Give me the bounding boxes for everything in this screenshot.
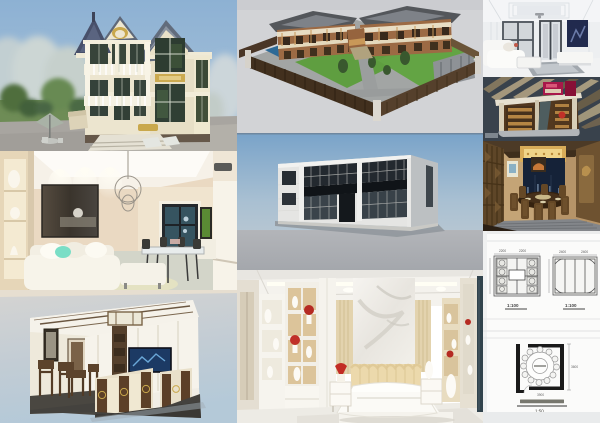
svg-text:1:100: 1:100 [565,303,577,308]
svg-text:2400: 2400 [581,250,588,254]
svg-text:3600: 3600 [571,365,578,369]
svg-text:2400: 2400 [559,250,566,254]
svg-text:2200: 2200 [499,249,506,253]
svg-text:3900: 3900 [537,393,544,397]
svg-text:1:100: 1:100 [507,303,519,308]
svg-text:2200: 2200 [519,249,526,253]
